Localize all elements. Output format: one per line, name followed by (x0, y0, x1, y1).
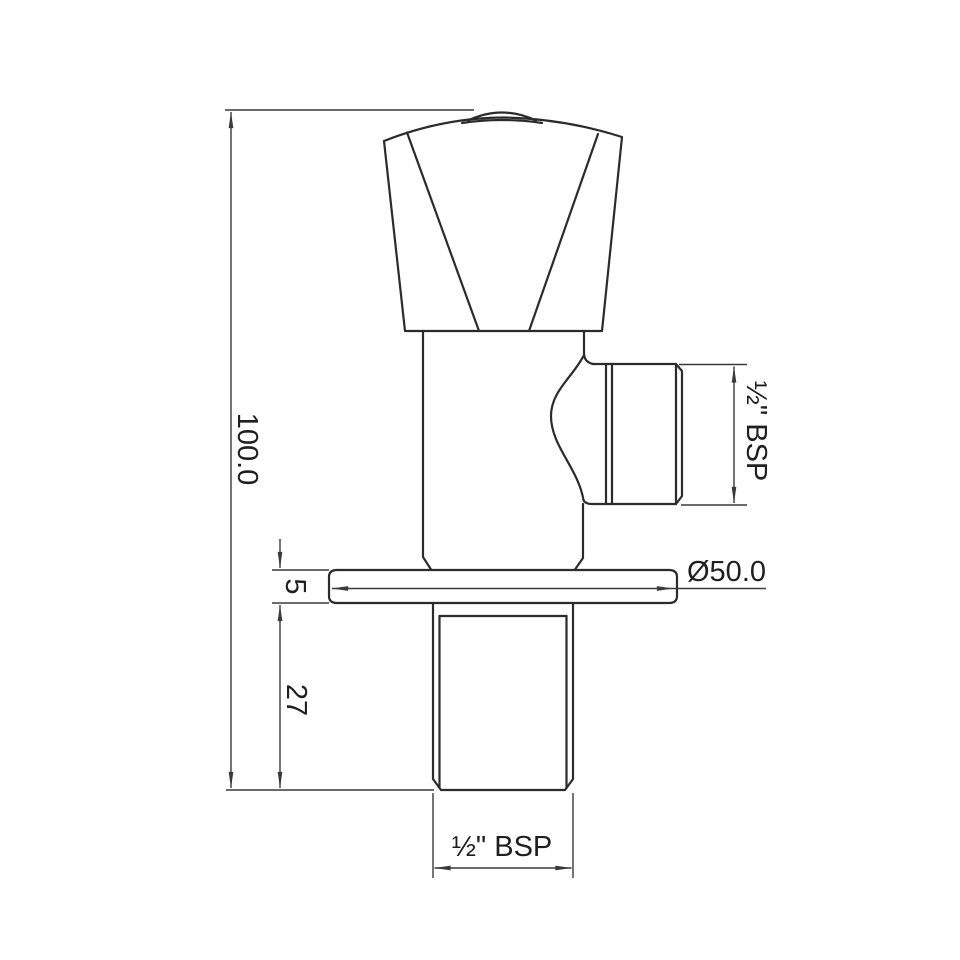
label-outlet-thread: ½" BSP (740, 381, 772, 482)
cap-base (462, 120, 542, 123)
label-inlet-length: 27 (280, 684, 312, 716)
valve-body (423, 331, 593, 570)
label-inlet-thread: ½" BSP (452, 831, 553, 863)
body-left-edge (423, 331, 431, 570)
valve-handle (384, 118, 622, 332)
outlet-spigot (584, 364, 683, 504)
label-overall-height: 100.0 (231, 413, 263, 486)
body-right-upper-edge (584, 331, 593, 364)
handle-facet-left (407, 133, 479, 332)
drawing-canvas: 100.0 5 27 Ø50.0 ½" BSP ½" BSP (0, 0, 960, 960)
valve-technical-drawing: 100.0 5 27 Ø50.0 ½" BSP ½" BSP (0, 0, 960, 960)
body-transition-bulge (551, 355, 584, 500)
dimension-outlet-thread (679, 365, 747, 506)
inlet-spigot (433, 603, 573, 790)
handle-outline (384, 118, 622, 332)
wall-flange (329, 570, 677, 603)
dimension-lines (225, 110, 766, 878)
inlet-outer (433, 603, 573, 790)
label-flange-thickness: 5 (279, 578, 311, 594)
label-flange-diameter: Ø50.0 (687, 556, 766, 588)
body-right-lower-edge (575, 504, 583, 570)
valve-outline (329, 113, 682, 791)
outlet-body (584, 364, 683, 504)
handle-facet-right (529, 134, 598, 331)
